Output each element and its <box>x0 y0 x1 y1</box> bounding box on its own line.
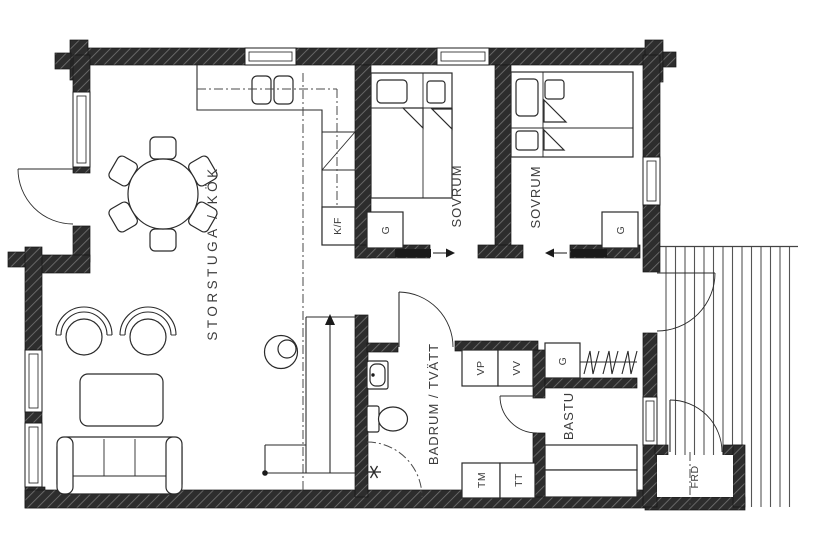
pillow <box>377 80 407 103</box>
label-g-bedroom2: G <box>615 226 627 235</box>
wall-jog <box>40 255 90 273</box>
wall-frd-east <box>733 445 745 507</box>
label-vp: VP <box>475 360 487 375</box>
pillow <box>516 131 538 150</box>
sink-basin-right <box>274 76 293 104</box>
coffee-table <box>80 374 163 426</box>
label-g-hall: G <box>557 357 569 366</box>
label-vv: VV <box>511 360 523 375</box>
sliding-door-bedroom2 <box>571 249 607 257</box>
wall-bedroom1-bedroom2 <box>495 65 511 247</box>
bed-bedroom1 <box>371 73 452 198</box>
window-west-lower-2 <box>25 423 42 487</box>
label-sovrum-2: SOVRUM <box>528 165 543 228</box>
window-west-upper <box>73 92 90 167</box>
wall-east <box>643 55 660 157</box>
label-tt: TT <box>513 473 525 487</box>
wall-west-upper <box>73 55 90 92</box>
label-tm: TM <box>476 472 488 488</box>
label-sovrum-1: SOVRUM <box>449 164 464 227</box>
sink-basin-left <box>252 76 271 104</box>
pillow <box>516 79 538 116</box>
wall-hall-north-2 <box>478 245 523 258</box>
sliding-door-bedroom1 <box>395 249 431 257</box>
sofa <box>57 437 182 494</box>
label-badrum-tvatt: BADRUM / TVÄTT <box>426 343 441 465</box>
floorplan-page: STORSTUGA / KÖK SOVRUM SOVRUM BADRUM / T… <box>0 0 831 555</box>
label-frd: FRD <box>689 465 701 488</box>
window-sauna <box>643 397 657 445</box>
washbasin <box>367 361 388 389</box>
label-storstuga-kok: STORSTUGA / KÖK <box>205 165 220 340</box>
label-g-bedroom1: G <box>380 226 392 235</box>
window-kitchen <box>245 48 296 65</box>
floorplan-drawing: STORSTUGA / KÖK SOVRUM SOVRUM BADRUM / T… <box>0 0 831 555</box>
bed-bedroom2 <box>511 72 633 157</box>
sofa-armrest-left <box>57 437 73 494</box>
wall-sauna-north <box>545 378 637 388</box>
pillow <box>427 81 445 103</box>
wall-bathroom-sauna <box>533 350 545 398</box>
dining-table <box>128 159 198 229</box>
window-west-lower-1 <box>25 350 42 412</box>
label-kf: K/F <box>332 217 344 235</box>
sofa-armrest-right <box>166 437 182 494</box>
wall-north <box>80 48 657 65</box>
label-bastu: BASTU <box>561 392 576 440</box>
wall-west-lower <box>25 247 42 350</box>
toilet <box>367 406 408 432</box>
sauna-benches <box>545 445 637 497</box>
window-bedroom1 <box>437 48 489 65</box>
window-bedroom2 <box>643 157 660 205</box>
fireplace-stove <box>265 336 298 369</box>
wall-livingroom-bathroom <box>355 315 368 497</box>
